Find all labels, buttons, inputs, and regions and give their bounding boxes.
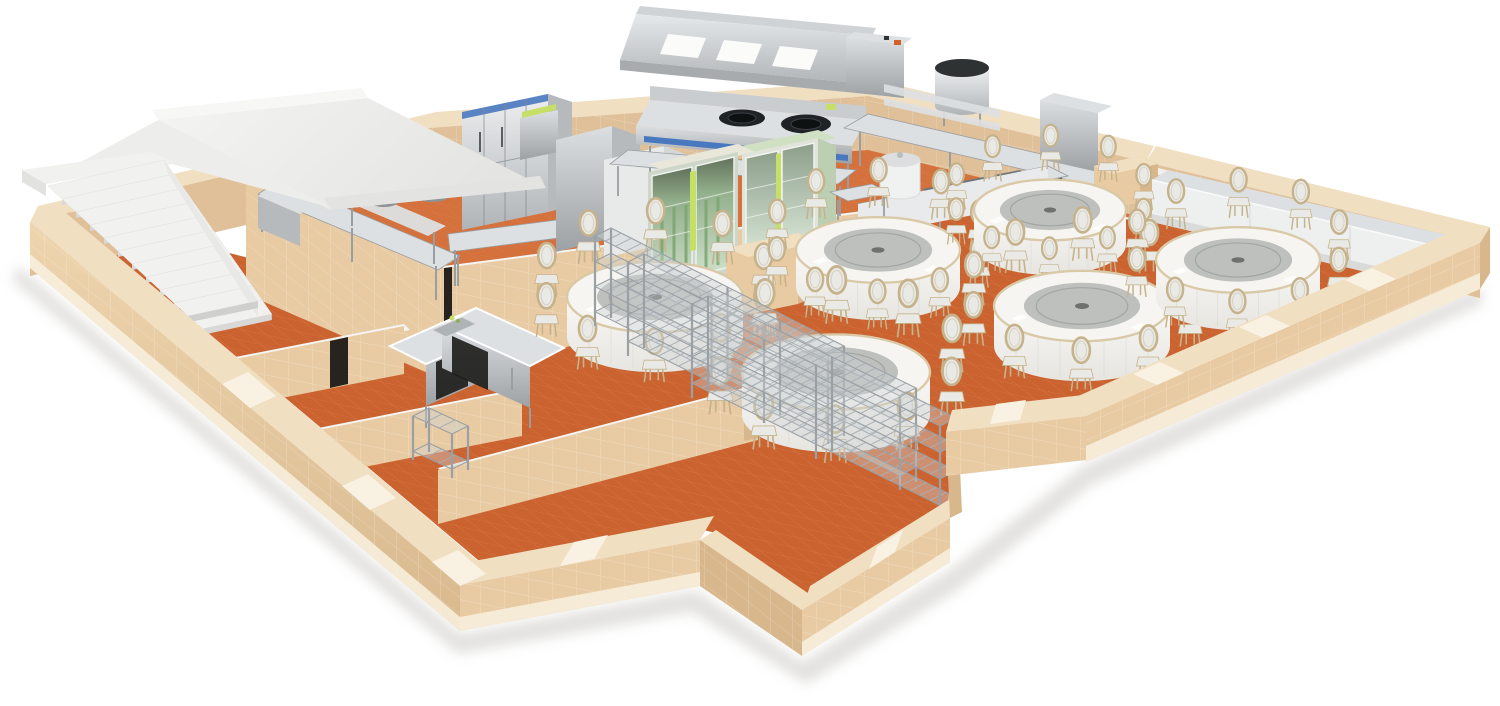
hood-light: [716, 40, 762, 64]
hood-light: [660, 34, 706, 58]
scene-canvas: [0, 0, 1500, 706]
hood-dishwasher: [520, 104, 558, 160]
hood-light: [772, 46, 818, 70]
door-slot: [330, 337, 348, 388]
floor-plan-render: [0, 0, 1500, 706]
